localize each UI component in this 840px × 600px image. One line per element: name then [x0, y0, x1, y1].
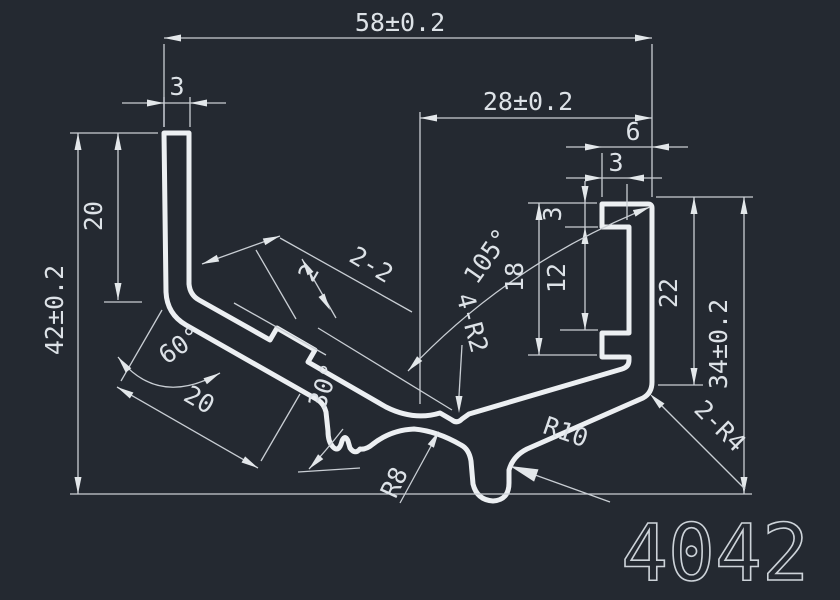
dim-lip-height-label: 3: [538, 206, 567, 221]
dim-right-channel-label: 22: [654, 278, 683, 308]
dim-step-note-label: 2-2: [345, 241, 399, 289]
dim-inner-width-label: 28±0.2: [483, 87, 573, 116]
dim-channel-height-label: 18: [500, 262, 529, 292]
leader-corner-radii: [459, 345, 462, 396]
dimension-labels: 58±0.2 28±0.2 3 6 3 42±0.2 20 3 18 12 22…: [40, 8, 752, 502]
dim-v-angle-arc: [408, 207, 650, 371]
leader-bottom-radius: [400, 437, 436, 503]
label-bottom-radius: R8: [375, 463, 414, 503]
dim-step-thickness-label: 2: [292, 259, 325, 287]
dim-left-height-label: 42±0.2: [40, 265, 69, 355]
cad-drawing-canvas: 58±0.2 28±0.2 3 6 3 42±0.2 20 3 18 12 22…: [0, 0, 840, 600]
dim-left-leg-label: 20: [79, 201, 108, 231]
dim-total-width-label: 58±0.2: [355, 8, 445, 37]
label-right-corner-radii: 2-R4: [688, 394, 751, 457]
label-valley-radius: R10: [540, 411, 592, 453]
dim-slot-opening-label: 12: [542, 263, 571, 293]
dim-slot-depth-label: 6: [625, 117, 640, 146]
dim-left-wall-label: 3: [169, 72, 184, 101]
dim-lip-width-label: 3: [608, 148, 623, 177]
dim-slant-angle-label: 30°: [303, 360, 346, 412]
part-number: 4042: [621, 509, 809, 599]
dim-left-angle-label: 60°: [153, 320, 207, 370]
dim-right-height-label: 34±0.2: [704, 299, 733, 389]
